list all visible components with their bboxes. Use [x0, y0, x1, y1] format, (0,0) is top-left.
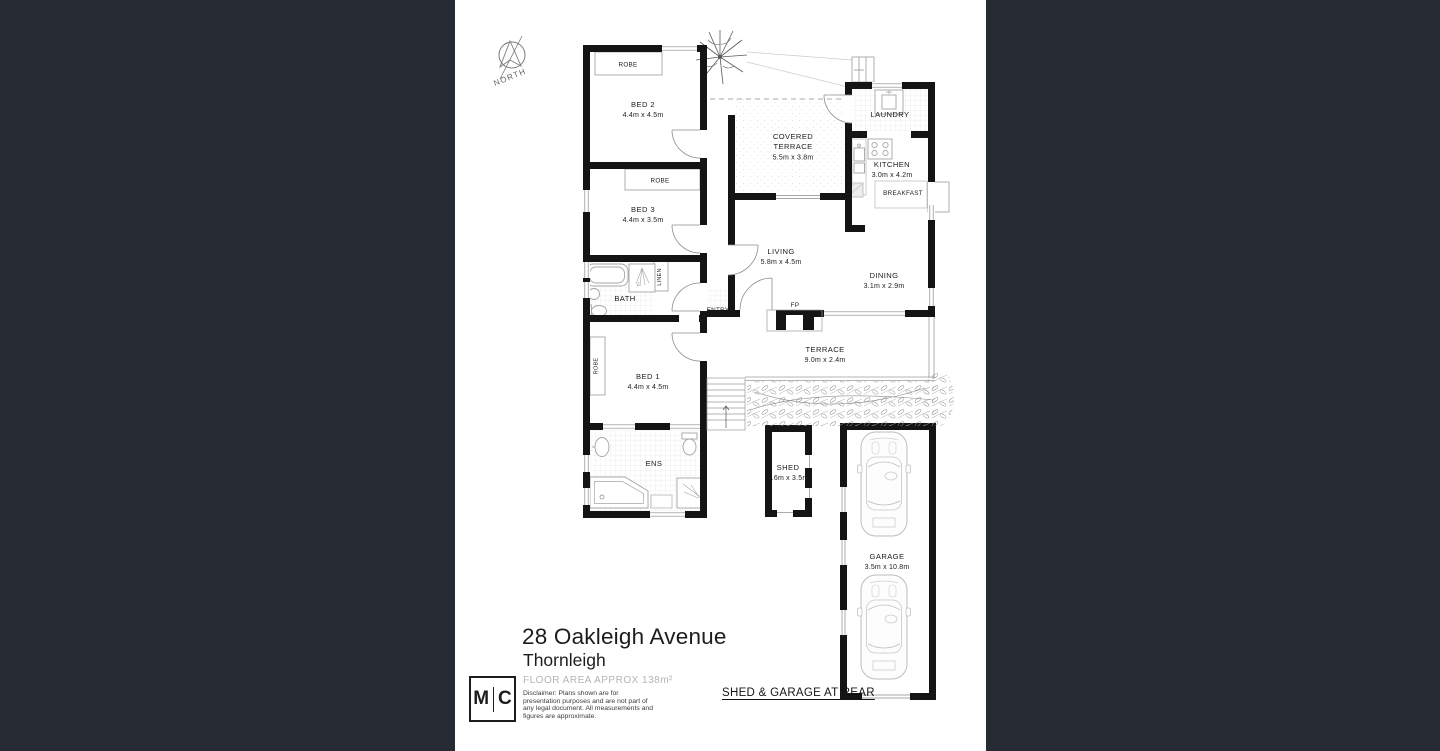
room-label-shed: SHED: [777, 463, 800, 472]
floor-plan-svg: NORTH: [455, 0, 986, 751]
room-dims-living: 5.8m x 4.5m: [761, 259, 802, 266]
room-label-bath: BATH: [614, 294, 635, 303]
room-label-ens: ENS: [646, 459, 663, 468]
room-dims-bed1: 4.4m x 4.5m: [628, 384, 669, 391]
garden-foliage: [747, 370, 954, 426]
robe-bed2-label: ROBE: [618, 62, 637, 69]
robe-bed3-label: ROBE: [650, 178, 669, 185]
fireplace-label: FP: [791, 302, 800, 309]
room-dims-bed3: 4.4m x 3.5m: [623, 217, 664, 224]
north-compass-icon: NORTH: [492, 36, 527, 88]
room-label-bed1: BED 1: [636, 372, 660, 381]
ens-toilet-icon: [682, 433, 697, 455]
stairs: [707, 378, 745, 430]
room-label-bed2: BED 2: [631, 100, 655, 109]
room-label-terrace: TERRACE: [805, 345, 844, 354]
room-label-living: LIVING: [767, 247, 794, 256]
room-label-dining: DINING: [870, 271, 899, 280]
room-dims-kitchen: 3.0m x 4.2m: [872, 172, 913, 179]
room-dims-shed: 1.6m x 3.5m: [768, 475, 809, 482]
compass-label: NORTH: [492, 67, 527, 88]
laundry-steps: [852, 57, 874, 82]
room-label-covered-terrace-2: TERRACE: [773, 142, 812, 151]
room-dims-garage: 3.5m x 10.8m: [865, 564, 910, 571]
room-label-garage: GARAGE: [870, 552, 905, 561]
room-label-bed3: BED 3: [631, 205, 655, 214]
shower-icon: [629, 264, 655, 292]
room-dims-dining: 3.1m x 2.9m: [864, 283, 905, 290]
bathtub-icon: [586, 264, 628, 286]
room-label-laundry: LAUNDRY: [871, 110, 910, 119]
roofline-guides: [710, 52, 852, 99]
room-dims-covered-terrace: 5.5m x 3.8m: [773, 155, 814, 162]
room-label-entry: ENTRY: [707, 307, 730, 314]
room-label-covered-terrace-1: COVERED: [773, 132, 813, 141]
ens-cabinet: [651, 495, 672, 508]
room-dims-bed2: 4.4m x 4.5m: [623, 112, 664, 119]
room-dims-terrace: 9.0m x 2.4m: [805, 357, 846, 364]
room-label-breakfast: BREAKFAST: [883, 190, 923, 197]
stove-icon: [868, 139, 892, 159]
floorplan-page: NORTH: [455, 0, 986, 751]
robe-bed1-label: ROBE: [594, 358, 600, 375]
room-label-kitchen: KITCHEN: [874, 160, 910, 169]
linen-label: LINEN: [657, 268, 663, 285]
